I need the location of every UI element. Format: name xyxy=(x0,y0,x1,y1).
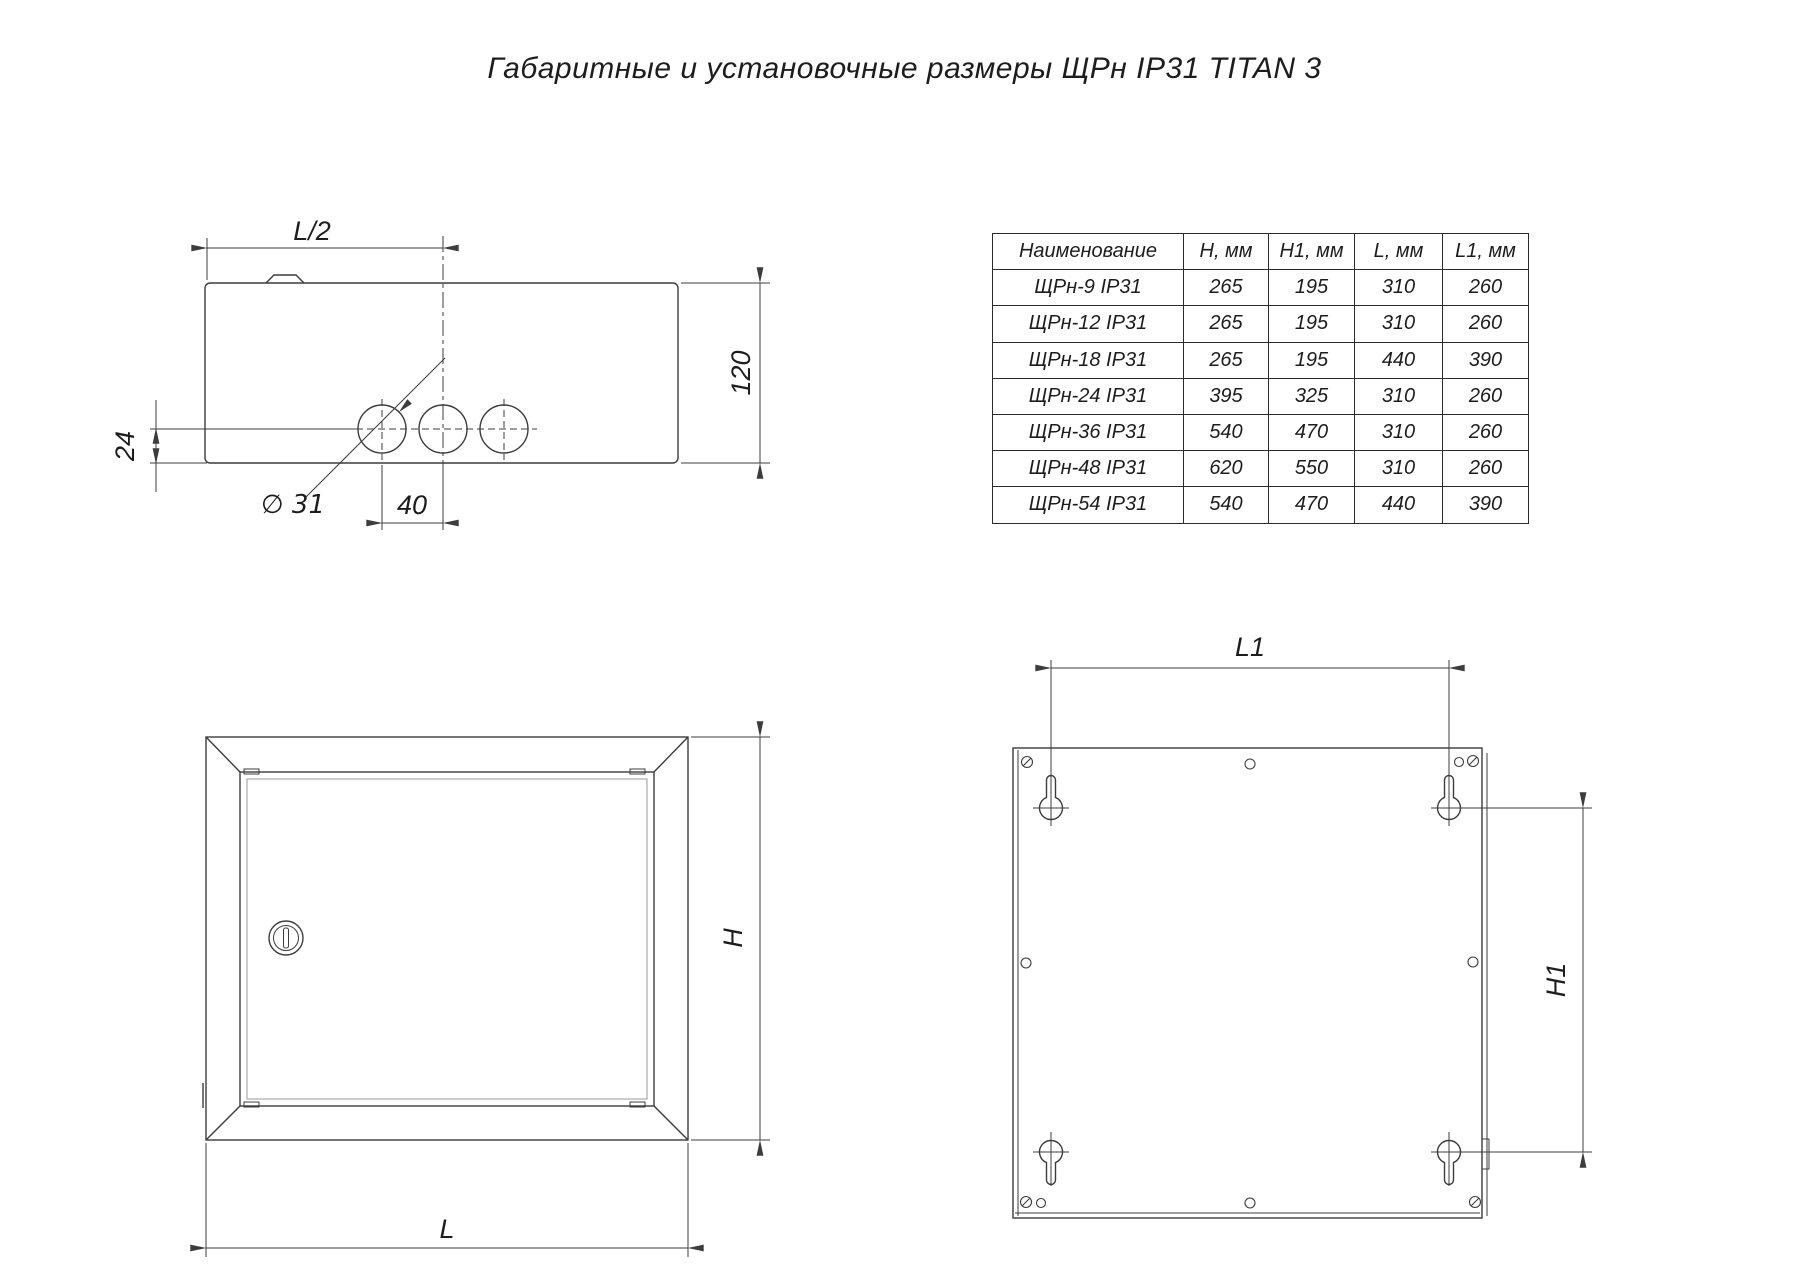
table-cell: 265 xyxy=(1184,342,1269,378)
small-hole xyxy=(1455,758,1464,767)
screw-slot xyxy=(1022,1198,1030,1206)
table-row: ЩРн-24 IP31 395 325 310 260 xyxy=(993,378,1529,414)
table-cell: 310 xyxy=(1355,270,1443,306)
corner-screws xyxy=(1021,756,1481,1208)
table-cell: ЩРн-36 IP31 xyxy=(993,414,1184,450)
dim-label-spacing: 40 xyxy=(397,490,427,520)
table-cell: 310 xyxy=(1355,451,1443,487)
screw-slot xyxy=(1469,757,1477,765)
table-cell: 195 xyxy=(1269,306,1355,342)
dim-label-front-height: H xyxy=(718,928,748,948)
table-cell: 310 xyxy=(1355,414,1443,450)
table-cell: 390 xyxy=(1443,487,1529,523)
rear-view: L1 H1 xyxy=(1013,632,1592,1218)
bevel-line xyxy=(206,1106,240,1140)
table-cell: 620 xyxy=(1184,451,1269,487)
bevel-line xyxy=(654,737,688,772)
lock-outer-ring xyxy=(269,921,303,955)
table-cell: 260 xyxy=(1443,306,1529,342)
drawing-sheet: Габаритные и установочные размеры ЩРн IP… xyxy=(0,0,1809,1281)
table-header-cell: H1, мм xyxy=(1269,234,1355,270)
table-cell: 310 xyxy=(1355,378,1443,414)
small-hole xyxy=(1245,759,1255,769)
dim-label-depth: 120 xyxy=(726,350,756,395)
table-row: ЩРн-9 IP31 265 195 310 260 xyxy=(993,270,1529,306)
table-cell: 440 xyxy=(1355,487,1443,523)
size-table: Наименование H, мм H1, мм L, мм L1, мм Щ… xyxy=(992,233,1529,524)
small-hole xyxy=(1245,1198,1255,1208)
enclosure-rear-outline xyxy=(1013,748,1482,1218)
table-header-row: Наименование H, мм H1, мм L, мм L1, мм xyxy=(993,234,1529,270)
table-cell: ЩРн-9 IP31 xyxy=(993,270,1184,306)
table-cell: 440 xyxy=(1355,342,1443,378)
dim-label-mount-width: L1 xyxy=(1235,632,1265,662)
table-cell: 195 xyxy=(1269,342,1355,378)
dimensions-table: Наименование H, мм H1, мм L, мм L1, мм Щ… xyxy=(992,233,1529,524)
enclosure-top-outline xyxy=(205,283,678,463)
table-header-cell: L, мм xyxy=(1355,234,1443,270)
dim-label-front-width: L xyxy=(439,1214,454,1244)
table-cell: 540 xyxy=(1184,414,1269,450)
lock-inner-ring xyxy=(274,926,299,951)
table-row: ЩРн-36 IP31 540 470 310 260 xyxy=(993,414,1529,450)
small-hole xyxy=(1468,957,1478,967)
lock-keyhole-slot xyxy=(284,928,289,948)
table-cell: 310 xyxy=(1355,306,1443,342)
table-cell: 325 xyxy=(1269,378,1355,414)
leader-line xyxy=(305,358,445,498)
table-cell: 470 xyxy=(1269,487,1355,523)
table-cell: 265 xyxy=(1184,270,1269,306)
table-cell: 260 xyxy=(1443,414,1529,450)
table-header-cell: L1, мм xyxy=(1443,234,1529,270)
lock-bump xyxy=(266,275,304,283)
mounting-keyholes xyxy=(1033,776,1461,1187)
table-row: ЩРн-18 IP31 265 195 440 390 xyxy=(993,342,1529,378)
grounding-tab xyxy=(1482,1139,1489,1169)
bevel-line xyxy=(206,737,240,772)
table-cell: ЩРн-48 IP31 xyxy=(993,451,1184,487)
table-cell: ЩРн-18 IP31 xyxy=(993,342,1184,378)
table-header-cell: H, мм xyxy=(1184,234,1269,270)
top-view: L/2 120 24 ∅ 31 40 xyxy=(110,216,770,530)
door-lock xyxy=(269,921,303,955)
bevel-line xyxy=(654,1106,688,1140)
door-panel xyxy=(240,772,654,1106)
table-cell: 395 xyxy=(1184,378,1269,414)
table-row: ЩРн-12 IP31 265 195 310 260 xyxy=(993,306,1529,342)
table-row: ЩРн-54 IP31 540 470 440 390 xyxy=(993,487,1529,523)
table-cell: 260 xyxy=(1443,451,1529,487)
table-header-cell: Наименование xyxy=(993,234,1184,270)
table-cell: 550 xyxy=(1269,451,1355,487)
table-cell: 195 xyxy=(1269,270,1355,306)
table-cell: 260 xyxy=(1443,270,1529,306)
screw-slot xyxy=(1023,758,1031,766)
small-hole xyxy=(1037,1199,1046,1208)
door-panel-inner-line xyxy=(247,779,647,1099)
enclosure-front-outline xyxy=(206,737,688,1140)
vent-holes xyxy=(1021,758,1478,1209)
table-cell: 540 xyxy=(1184,487,1269,523)
dim-label-half-width: L/2 xyxy=(293,216,331,246)
table-cell: 260 xyxy=(1443,378,1529,414)
dim-label-diameter: ∅ 31 xyxy=(261,490,325,520)
table-cell: 265 xyxy=(1184,306,1269,342)
screw-slot xyxy=(1471,1198,1479,1206)
table-cell: ЩРн-12 IP31 xyxy=(993,306,1184,342)
dim-label-mount-height: H1 xyxy=(1541,963,1571,998)
table-cell: ЩРн-24 IP31 xyxy=(993,378,1184,414)
table-cell: 390 xyxy=(1443,342,1529,378)
leader-arrow xyxy=(399,399,412,412)
table-row: ЩРн-48 IP31 620 550 310 260 xyxy=(993,451,1529,487)
technical-drawing: L/2 120 24 ∅ 31 40 xyxy=(0,0,1809,1281)
dim-label-offset: 24 xyxy=(110,431,140,462)
small-hole xyxy=(1021,958,1031,968)
table-cell: 470 xyxy=(1269,414,1355,450)
table-cell: ЩРн-54 IP31 xyxy=(993,487,1184,523)
front-view: H L xyxy=(203,737,770,1257)
